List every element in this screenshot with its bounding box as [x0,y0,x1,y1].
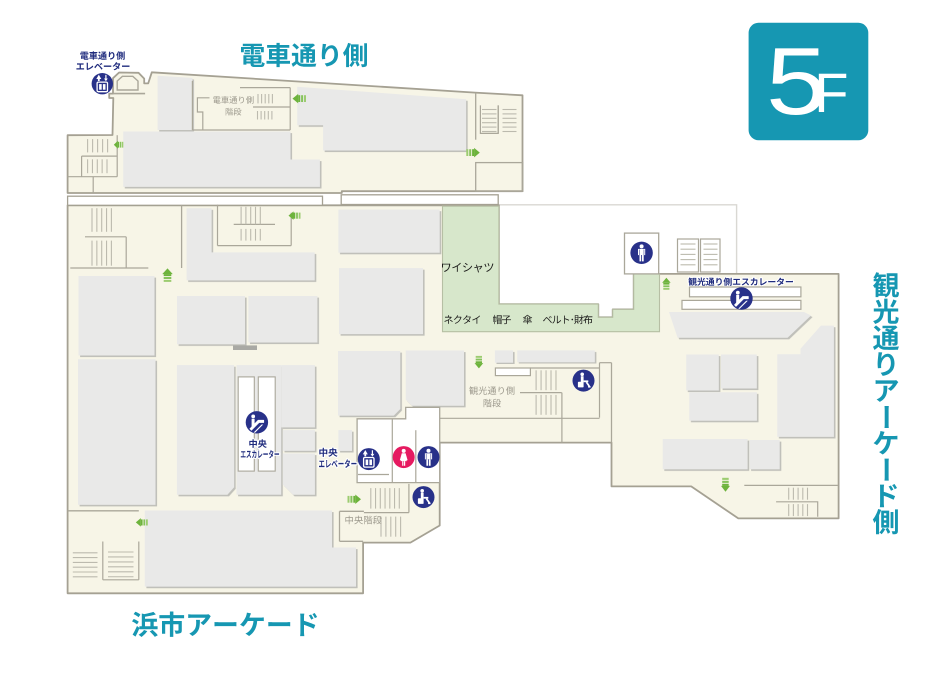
svg-text:F: F [814,61,848,124]
